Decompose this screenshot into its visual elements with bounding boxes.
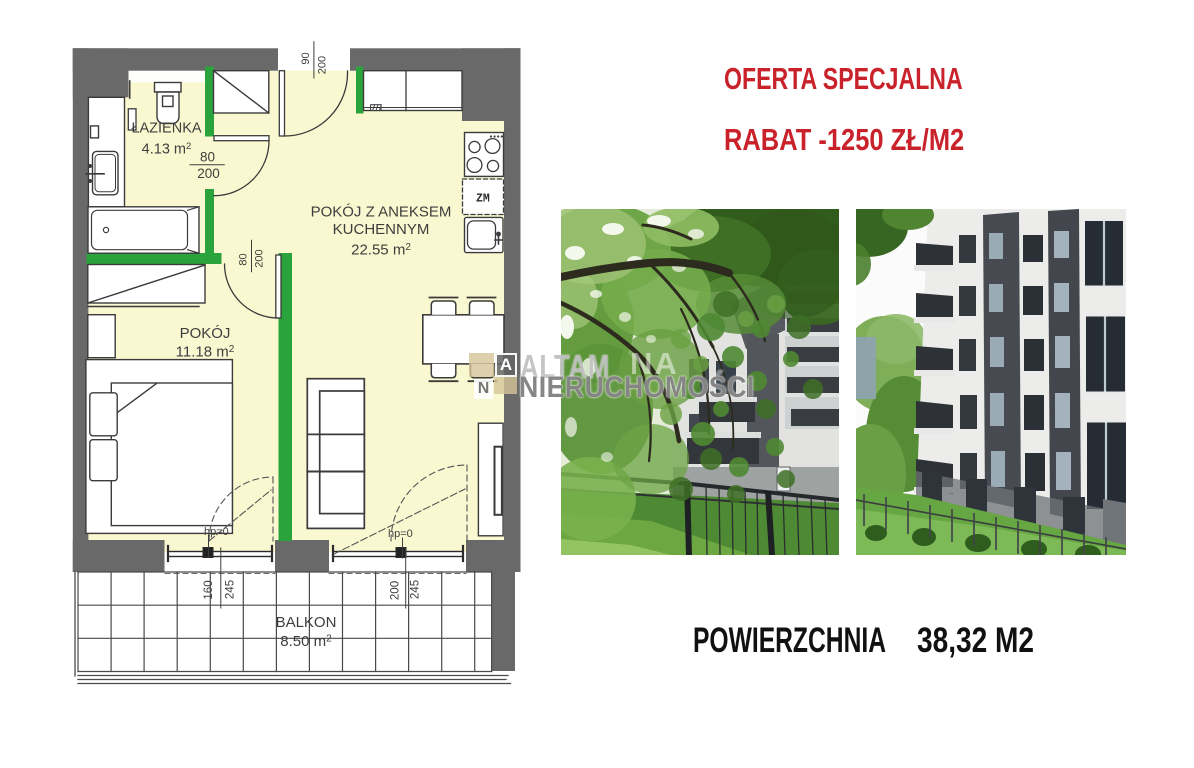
svg-text:POKÓJ: POKÓJ	[180, 325, 231, 342]
svg-text:90: 90	[300, 52, 312, 64]
svg-text:245: 245	[225, 580, 237, 599]
svg-text:KUCHENNYM: KUCHENNYM	[333, 221, 430, 238]
svg-text:200: 200	[197, 166, 220, 181]
svg-text:80: 80	[237, 253, 249, 265]
svg-text:hp=0: hp=0	[388, 528, 413, 540]
svg-text:80: 80	[200, 150, 215, 165]
svg-text:BALKON: BALKON	[276, 614, 337, 631]
svg-text:200: 200	[316, 56, 328, 74]
svg-text:hp=0: hp=0	[204, 526, 229, 538]
svg-text:245: 245	[410, 580, 422, 599]
svg-text:200: 200	[390, 581, 402, 600]
svg-text:ŁAZIENKA: ŁAZIENKA	[131, 121, 201, 137]
svg-text:11.18 m2: 11.18 m2	[176, 344, 235, 361]
svg-text:ZM: ZM	[476, 193, 490, 206]
svg-text:8.50 m2: 8.50 m2	[280, 633, 332, 650]
svg-text:4.13 m2: 4.13 m2	[142, 141, 192, 158]
svg-text:200: 200	[253, 249, 265, 267]
svg-text:POKÓJ Z ANEKSEM: POKÓJ Z ANEKSEM	[311, 204, 452, 221]
svg-text:160: 160	[203, 580, 215, 599]
svg-text:22.55 m2: 22.55 m2	[351, 242, 411, 259]
